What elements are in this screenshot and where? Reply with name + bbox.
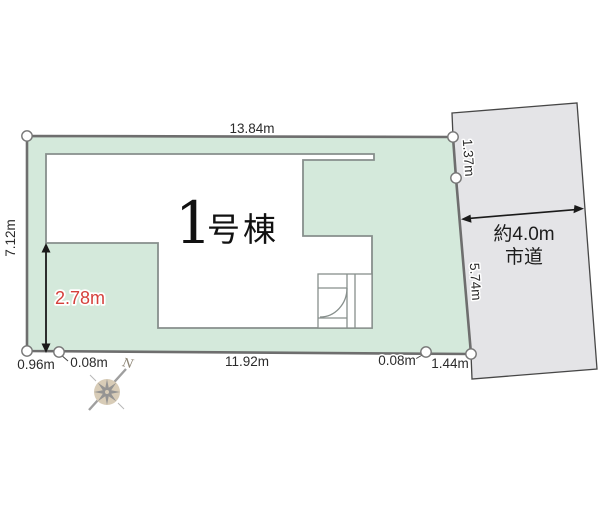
north-label: N [120,355,135,371]
vertex-bottom-right-jog [421,347,431,357]
road-width-label: 約4.0m [493,223,554,245]
dim-right-lower: 5.74m [467,262,485,300]
dim-bottom-seg4: 0.08m [378,353,416,368]
vertex-bottom-left [22,346,32,356]
plot-diagram: N 1 号棟 13.84m 7.12m 1.37m 5.74m 2.78m 0.… [0,0,600,511]
vertex-right-mid [451,173,461,183]
dim-bottom-seg2: 0.08m [70,355,108,370]
dim-top: 13.84m [229,121,274,136]
entrance-detail [318,274,372,328]
vertex-top-right [448,132,458,142]
plot-diagram-canvas: N 1 号棟 13.84m 7.12m 1.37m 5.74m 2.78m 0.… [0,0,600,511]
dim-bottom-seg3: 11.92m [225,354,269,369]
dim-right-upper: 1.37m [460,138,478,176]
dim-bottom-seg1: 0.96m [17,357,55,372]
building-suffix: 号棟 [207,211,279,248]
dim-setback: 2.78m [55,288,105,308]
dim-bottom-seg5: 1.44m [431,356,469,371]
vertex-top-left [22,131,32,141]
road-type-label: 市道 [505,246,543,268]
vertex-bottom-left-jog [54,347,64,357]
dim-left: 7.12m [3,219,18,257]
